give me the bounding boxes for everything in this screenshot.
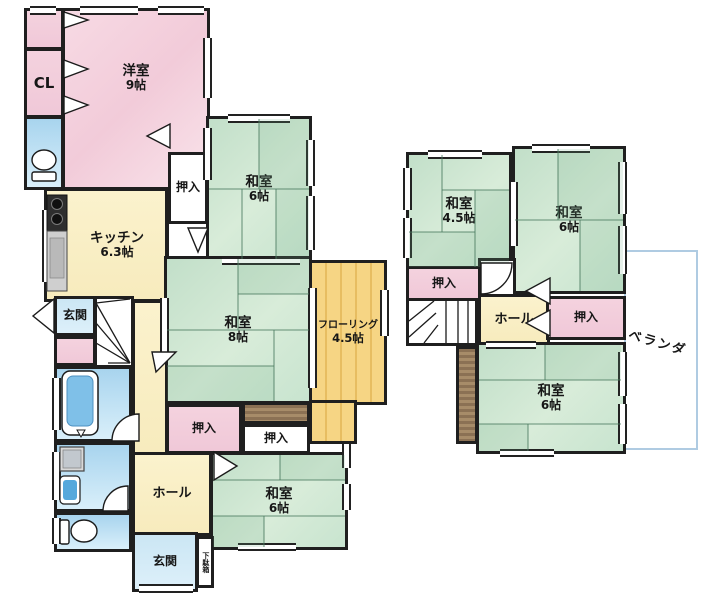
bathroom — [54, 366, 132, 442]
entrance-south: 玄関 — [132, 532, 198, 592]
window-marker — [228, 114, 290, 123]
sliding-door-marker — [308, 288, 317, 388]
hall-label: ホール — [152, 487, 191, 502]
closet-oshiire-1f-a: 押入 — [168, 152, 208, 224]
window-marker — [618, 162, 627, 214]
closet-label: 押入 — [432, 277, 456, 290]
window-marker — [532, 144, 590, 153]
window-marker — [158, 6, 204, 15]
window-marker — [342, 484, 351, 510]
window-marker — [238, 543, 296, 551]
room-size: 8帖 — [228, 331, 248, 344]
window-marker — [203, 128, 212, 180]
wood-strip-1f — [242, 402, 310, 424]
window-marker — [618, 226, 627, 274]
hall-2f: ホール — [478, 294, 550, 346]
room-label: 和室 — [556, 206, 583, 221]
window-marker — [52, 378, 61, 430]
closet-label: 押入 — [574, 311, 598, 324]
entrance-label: 玄関 — [153, 555, 177, 568]
sliding-door-marker — [509, 182, 518, 246]
floor-plan: ベランダ キッチン 6.3帖 洋室 9帖 CL 押入 和室 6帖 和室 8帖 フ… — [0, 0, 703, 595]
sliding-door-marker — [222, 257, 300, 265]
room-label: 和室 — [538, 384, 565, 399]
room-label: 和室 — [266, 487, 293, 502]
window-marker — [618, 404, 627, 444]
door-entrance-north — [33, 299, 54, 333]
window-marker — [500, 449, 554, 457]
room-kitchen: キッチン 6.3帖 — [44, 188, 168, 302]
window-marker — [380, 290, 389, 336]
washroom — [54, 442, 132, 512]
room-tatami-6-2f-south: 和室 6帖 — [476, 342, 626, 454]
room-flooring: フローリング 4.5帖 — [309, 260, 387, 405]
room-tatami-6-north: 和室 6帖 — [206, 116, 312, 262]
room-label: 和室 — [446, 197, 473, 212]
room-tatami-45-2f: 和室 4.5帖 — [406, 152, 512, 270]
window-marker — [403, 168, 412, 210]
room-size: 6帖 — [559, 221, 579, 234]
stairs-2f — [406, 298, 478, 346]
room-tatami-6-2f-north: 和室 6帖 — [512, 146, 626, 294]
stairs-1f — [94, 296, 134, 368]
room-tatami-6-south: 和室 6帖 — [210, 452, 348, 550]
closet-cl: CL — [24, 48, 64, 118]
room-label: フローリング — [318, 320, 378, 331]
window-marker — [306, 140, 315, 186]
closet-oshiire-2f-right: 押入 — [546, 296, 626, 340]
window-marker — [42, 210, 51, 282]
washstand-room — [54, 336, 96, 366]
shoe-cabinet-label: 下駄箱 — [201, 552, 209, 573]
closet-cl-label: CL — [34, 75, 55, 92]
entrance-label: 玄関 — [63, 309, 87, 322]
room-size: 9帖 — [126, 79, 146, 92]
room-size: 6帖 — [249, 190, 269, 203]
entrance-north: 玄関 — [54, 296, 96, 336]
closet-label: 押入 — [264, 432, 288, 445]
closet-label: 押入 — [192, 422, 216, 435]
closet-oshiire-1f-b: 押入 — [166, 404, 242, 454]
sliding-door-marker — [486, 341, 536, 349]
window-marker — [306, 196, 315, 250]
room-tatami-8: 和室 8帖 — [164, 256, 312, 404]
room-label: 和室 — [225, 316, 252, 331]
closet-label: 押入 — [176, 181, 200, 194]
toilet-room-1f-lower — [54, 512, 132, 552]
hall-1f: ホール — [132, 452, 212, 536]
sliding-door-marker — [139, 584, 193, 593]
room-flooring-ext — [309, 400, 357, 444]
window-marker — [618, 352, 627, 396]
window-marker — [52, 452, 61, 500]
hall-label: ホール — [494, 313, 533, 328]
toilet-room-1f-upper — [24, 116, 64, 190]
hall-2f-vestibule — [478, 258, 516, 298]
window-marker — [160, 298, 169, 356]
room-size: 6帖 — [269, 502, 289, 515]
corridor-patch — [166, 220, 210, 260]
room-size: 4.5帖 — [442, 212, 475, 225]
room-size: 6帖 — [541, 399, 561, 412]
shoe-cabinet: 下駄箱 — [196, 536, 214, 588]
room-label: 和室 — [246, 175, 273, 190]
window-marker — [428, 150, 482, 159]
closet-oshiire-1f-c: 押入 — [242, 424, 310, 454]
window-marker — [52, 518, 61, 544]
window-marker — [203, 38, 212, 98]
room-size: 6.3帖 — [100, 246, 133, 259]
window-marker — [30, 6, 56, 15]
window-marker — [80, 6, 138, 15]
wood-strip-2f — [456, 346, 478, 444]
room-label: キッチン — [90, 231, 144, 246]
window-marker — [403, 218, 412, 258]
window-marker — [342, 444, 351, 468]
closet-oshiire-2f-left: 押入 — [406, 266, 482, 302]
room-size: 4.5帖 — [332, 332, 364, 345]
room-label: 洋室 — [123, 64, 150, 79]
